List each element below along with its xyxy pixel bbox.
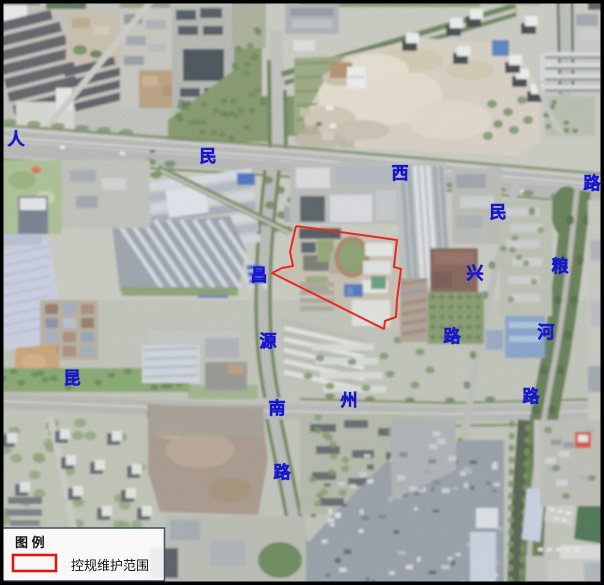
- svg-text:路: 路: [444, 326, 462, 346]
- svg-text:控规维护范围: 控规维护范围: [71, 558, 149, 573]
- svg-text:昆: 昆: [64, 369, 81, 388]
- svg-text:民: 民: [200, 147, 217, 166]
- svg-text:南: 南: [269, 398, 286, 418]
- svg-text:河: 河: [538, 323, 555, 342]
- svg-text:昌: 昌: [251, 266, 268, 285]
- svg-text:兴: 兴: [467, 264, 484, 283]
- svg-text:路: 路: [584, 173, 602, 193]
- svg-text:州: 州: [340, 391, 358, 410]
- svg-text:路: 路: [274, 462, 292, 482]
- svg-text:粮: 粮: [552, 256, 569, 276]
- svg-text:人: 人: [8, 130, 26, 149]
- svg-text:民: 民: [490, 203, 507, 222]
- svg-text:西: 西: [392, 164, 409, 183]
- svg-text:图 例: 图 例: [15, 535, 45, 550]
- svg-text:路: 路: [523, 386, 541, 406]
- svg-text:源: 源: [260, 331, 277, 351]
